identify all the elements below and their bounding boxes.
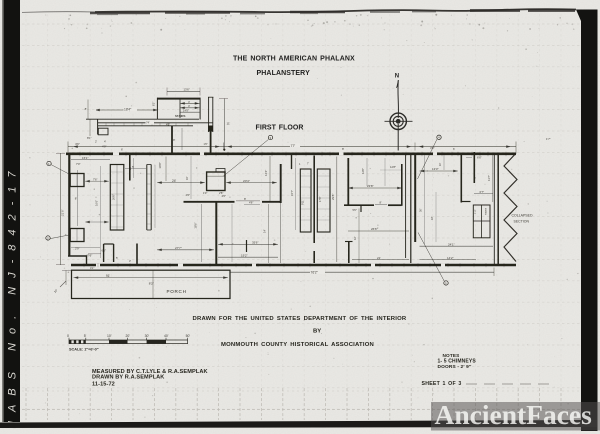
svg-text:SHEET 1 OF 3: SHEET 1 OF 3 (422, 381, 462, 387)
svg-text:4′1″: 4′1″ (90, 266, 94, 270)
svg-text:15′7″: 15′7″ (290, 190, 294, 196)
svg-text:18′: 18′ (430, 216, 434, 220)
svg-text:1′0″: 1′0″ (203, 191, 207, 195)
svg-text:FIRST FLOOR: FIRST FLOOR (256, 125, 304, 132)
svg-text:17′6″: 17′6″ (319, 196, 322, 202)
svg-text:THE NORTH AMERICAN PHALANX: THE NORTH AMERICAN PHALANX (233, 56, 355, 63)
svg-text:2′9″: 2′9″ (75, 246, 79, 250)
svg-text:23′8″: 23′8″ (367, 184, 374, 188)
svg-text:10′8″: 10′8″ (158, 162, 162, 168)
svg-text:11′: 11′ (227, 122, 231, 126)
svg-text:14′9″: 14′9″ (183, 109, 189, 113)
svg-text:14′2″: 14′2″ (447, 256, 454, 260)
svg-text:10': 10' (107, 334, 112, 338)
svg-text:21′6″: 21′6″ (61, 209, 65, 216)
svg-text:8′1″: 8′1″ (87, 136, 91, 140)
svg-text:6′2″: 6′2″ (152, 102, 156, 106)
svg-text:SECTION: SECTION (514, 220, 530, 224)
svg-text:1′6″: 1′6″ (204, 143, 208, 146)
svg-text:DRAWN BY R.A.SEMPLAK: DRAWN BY R.A.SEMPLAK (92, 375, 164, 381)
svg-text:11-15-72: 11-15-72 (92, 382, 115, 388)
svg-text:9′11″: 9′11″ (302, 200, 305, 205)
svg-text:30': 30' (145, 334, 150, 338)
svg-text:5': 5' (84, 334, 87, 338)
svg-text:6′6″: 6′6″ (477, 156, 482, 160)
svg-text:1- 5 CHIMNEYS: 1- 5 CHIMNEYS (438, 358, 477, 364)
svg-text:18′4″: 18′4″ (124, 108, 132, 112)
svg-text:8′2″: 8′2″ (149, 282, 154, 286)
svg-text:15′1″: 15′1″ (82, 156, 88, 160)
svg-text:7′6″: 7′6″ (93, 177, 97, 181)
svg-text:14′: 14′ (263, 229, 267, 233)
svg-text:NOTES: NOTES (443, 353, 460, 358)
svg-text:21′: 21′ (377, 256, 381, 260)
svg-text:COLLAPSED: COLLAPSED (512, 213, 533, 217)
svg-text:18′6″: 18′6″ (194, 222, 198, 228)
svg-text:AncientFaces: AncientFaces (435, 399, 593, 430)
svg-text:5′6″: 5′6″ (353, 208, 357, 212)
svg-text:MONMOUTH COUNTY HISTORICAL ASS: MONMOUTH COUNTY HISTORICAL ASSOCIATION (221, 342, 374, 348)
svg-text:BY: BY (313, 328, 321, 334)
svg-text:13′6″: 13′6″ (184, 88, 190, 92)
svg-text:1′7″: 1′7″ (546, 137, 551, 141)
svg-text:20': 20' (126, 334, 131, 338)
svg-text:35′6″: 35′6″ (252, 241, 258, 245)
svg-text:6′7″: 6′7″ (480, 190, 485, 194)
svg-text:24′: 24′ (172, 179, 177, 183)
svg-text:20′6″: 20′6″ (112, 194, 116, 200)
svg-text:N: N (395, 74, 399, 80)
svg-text:4′5″: 4′5″ (166, 123, 170, 126)
svg-text:16′: 16′ (185, 176, 189, 180)
svg-text:26′6″: 26′6″ (371, 227, 378, 231)
svg-text:4′6″: 4′6″ (186, 193, 190, 197)
svg-text:77′: 77′ (291, 144, 296, 148)
svg-text:2′10: 2′10 (474, 209, 476, 214)
svg-text:20′4″: 20′4″ (243, 179, 251, 183)
svg-text:11′7″: 11′7″ (487, 175, 491, 181)
svg-text:74′: 74′ (146, 121, 150, 125)
svg-text:27′7″: 27′7″ (175, 246, 183, 250)
svg-text:14′4″: 14′4″ (264, 170, 268, 176)
svg-text:PORCH: PORCH (167, 289, 187, 294)
svg-text:13′3″: 13′3″ (432, 167, 439, 171)
svg-text:4′6″: 4′6″ (75, 142, 80, 146)
svg-text:50': 50' (186, 334, 191, 338)
svg-text:2′8″: 2′8″ (219, 191, 223, 195)
svg-text:12′8″: 12′8″ (390, 165, 396, 169)
svg-text:76′2″: 76′2″ (311, 270, 319, 274)
svg-text:16′6″: 16′6″ (95, 200, 99, 206)
svg-text:12′8″: 12′8″ (361, 168, 365, 174)
svg-text:DOORS - 2′ 9″: DOORS - 2′ 9″ (438, 364, 472, 370)
svg-text:6′6″: 6′6″ (102, 248, 106, 252)
svg-text:0: 0 (67, 334, 69, 338)
svg-text:7′0″: 7′0″ (76, 162, 80, 166)
svg-text:47′6″: 47′6″ (86, 254, 92, 258)
svg-text:40': 40' (164, 334, 169, 338)
svg-text:STAIRS: STAIRS (175, 114, 185, 118)
svg-text:91′: 91′ (106, 274, 111, 278)
svg-text:16′: 16′ (353, 236, 357, 240)
svg-text:PHALANSTERY: PHALANSTERY (257, 70, 311, 77)
svg-text:24′1″: 24′1″ (448, 242, 455, 246)
svg-text:STAIRS: STAIRS (485, 207, 488, 215)
svg-text:10′: 10′ (439, 162, 442, 166)
svg-text:4′6″: 4′6″ (249, 201, 253, 205)
svg-text:30′: 30′ (419, 208, 423, 212)
svg-text:19′2″: 19′2″ (241, 253, 248, 257)
svg-text:4′6″: 4′6″ (430, 146, 434, 150)
svg-text:SCALE: 1″=6′-0″: SCALE: 1″=6′-0″ (69, 348, 99, 352)
svg-text:DRAWN FOR THE UNITED STATES DE: DRAWN FOR THE UNITED STATES DEPARTMENT O… (193, 316, 407, 322)
svg-text:29′8″: 29′8″ (331, 194, 335, 200)
svg-text:HABS No. NJ-842-17: HABS No. NJ-842-17 (7, 162, 19, 429)
svg-text:4′9″: 4′9″ (102, 144, 106, 148)
